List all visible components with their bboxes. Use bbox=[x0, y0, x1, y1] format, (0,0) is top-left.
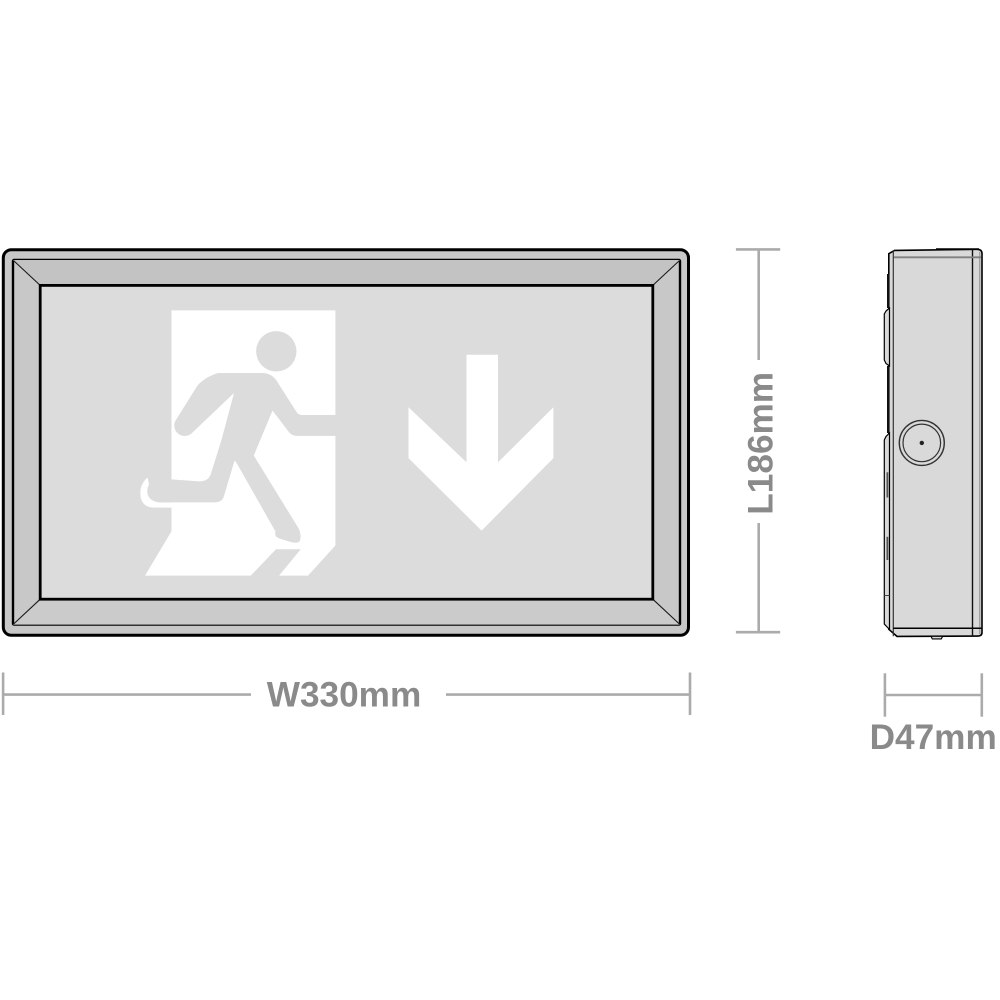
svg-text:L186mm: L186mm bbox=[742, 372, 781, 515]
svg-text:W330mm: W330mm bbox=[267, 676, 422, 715]
svg-text:D47mm: D47mm bbox=[870, 718, 997, 757]
